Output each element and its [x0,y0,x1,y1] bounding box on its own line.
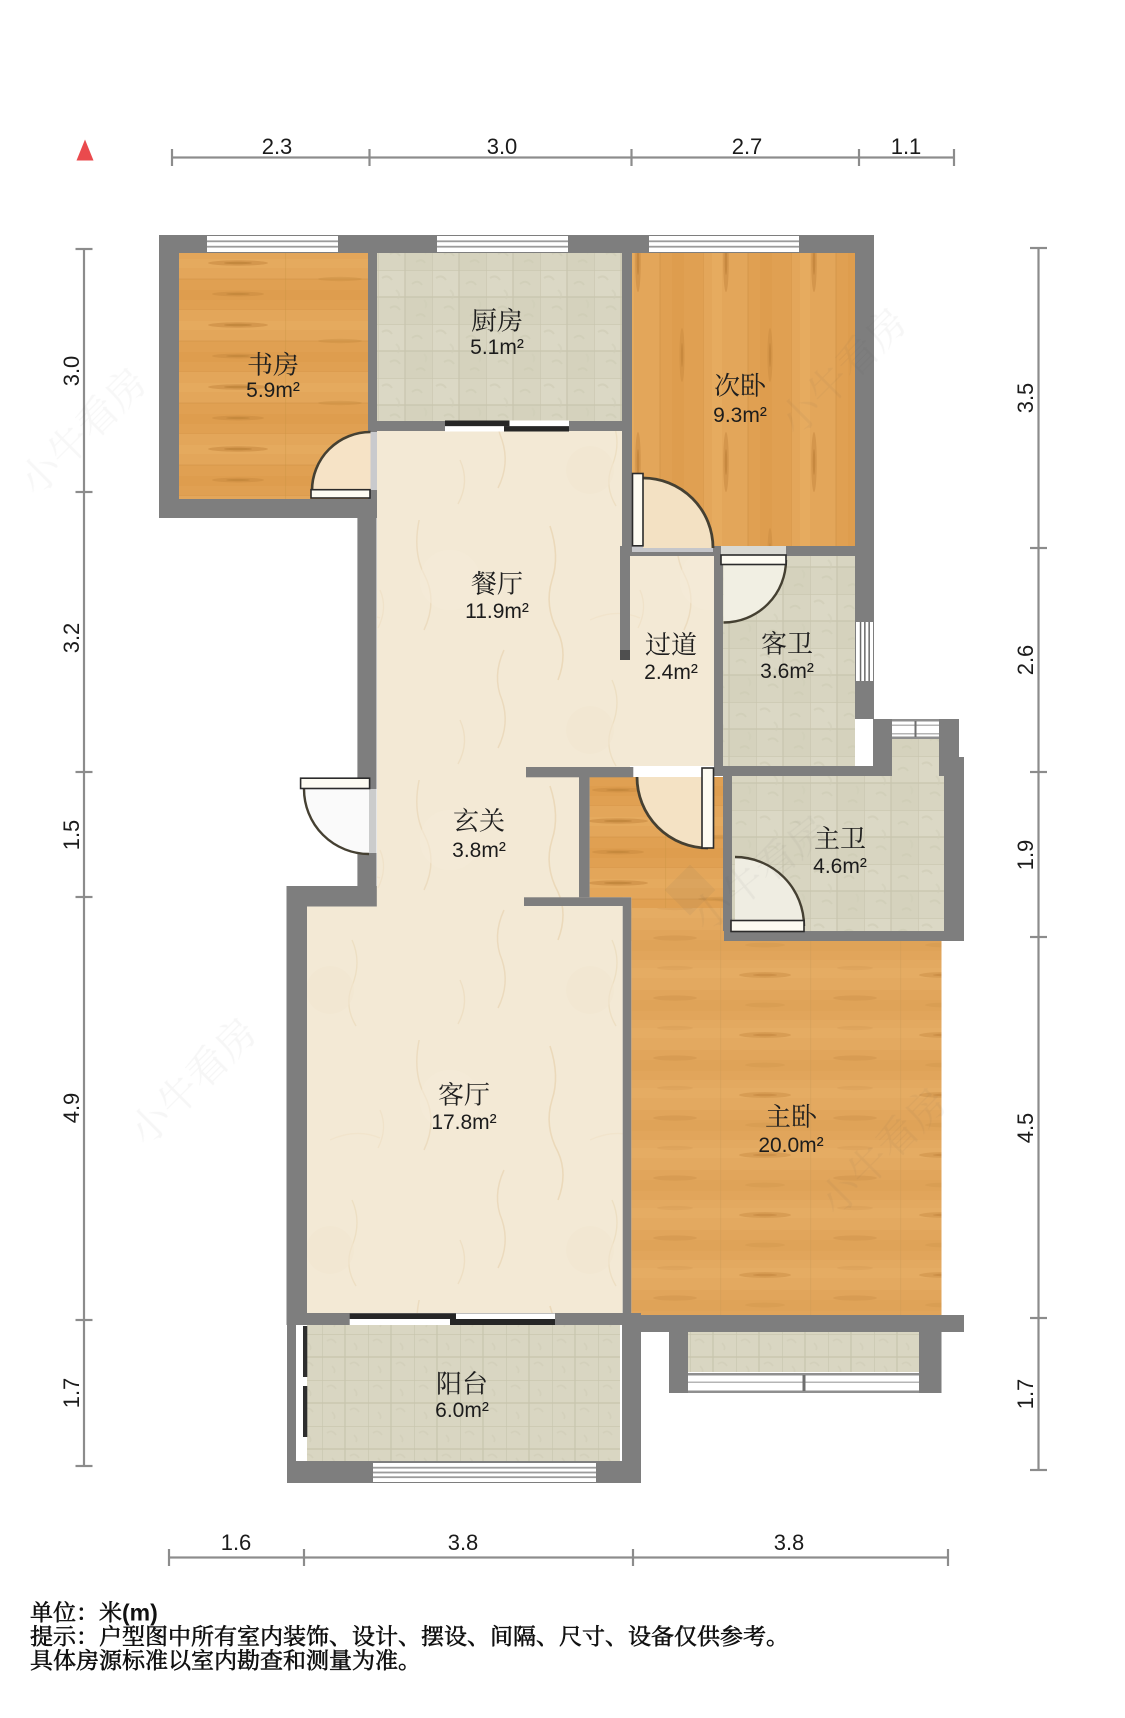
svg-text:3.0: 3.0 [59,356,84,387]
svg-text:1.5: 1.5 [59,820,84,851]
svg-text:1.7: 1.7 [59,1378,84,1409]
svg-text:4.9: 4.9 [59,1093,84,1124]
svg-text:1.9: 1.9 [1013,840,1038,871]
svg-text:3.8: 3.8 [774,1530,805,1555]
svg-text:1.1: 1.1 [891,134,922,159]
svg-text:6.0m²: 6.0m² [435,1399,489,1422]
svg-text:3.6m²: 3.6m² [760,660,814,683]
svg-text:11.9m²: 11.9m² [465,600,529,623]
svg-text:2.4m²: 2.4m² [644,661,698,684]
svg-text:2.3: 2.3 [262,134,293,159]
svg-text:9.3m²: 9.3m² [713,404,767,427]
svg-text:1.7: 1.7 [1013,1379,1038,1410]
svg-text:3.8m²: 3.8m² [452,839,506,862]
svg-text:17.8m²: 17.8m² [431,1111,496,1134]
svg-text:4.5: 4.5 [1013,1113,1038,1144]
svg-text:20.0m²: 20.0m² [758,1134,823,1157]
svg-text:(m): (m) [122,1600,158,1626]
svg-text:3.2: 3.2 [59,623,84,654]
svg-text:3.5: 3.5 [1013,383,1038,414]
svg-text:2.6: 2.6 [1013,645,1038,676]
svg-text:5.1m²: 5.1m² [470,336,524,359]
svg-text:2.7: 2.7 [732,134,763,159]
svg-text:4.6m²: 4.6m² [813,855,867,878]
svg-text:3.0: 3.0 [487,134,518,159]
svg-text:3.8: 3.8 [448,1530,479,1555]
svg-text:5.9m²: 5.9m² [246,379,300,402]
svg-text:1.6: 1.6 [221,1530,252,1555]
